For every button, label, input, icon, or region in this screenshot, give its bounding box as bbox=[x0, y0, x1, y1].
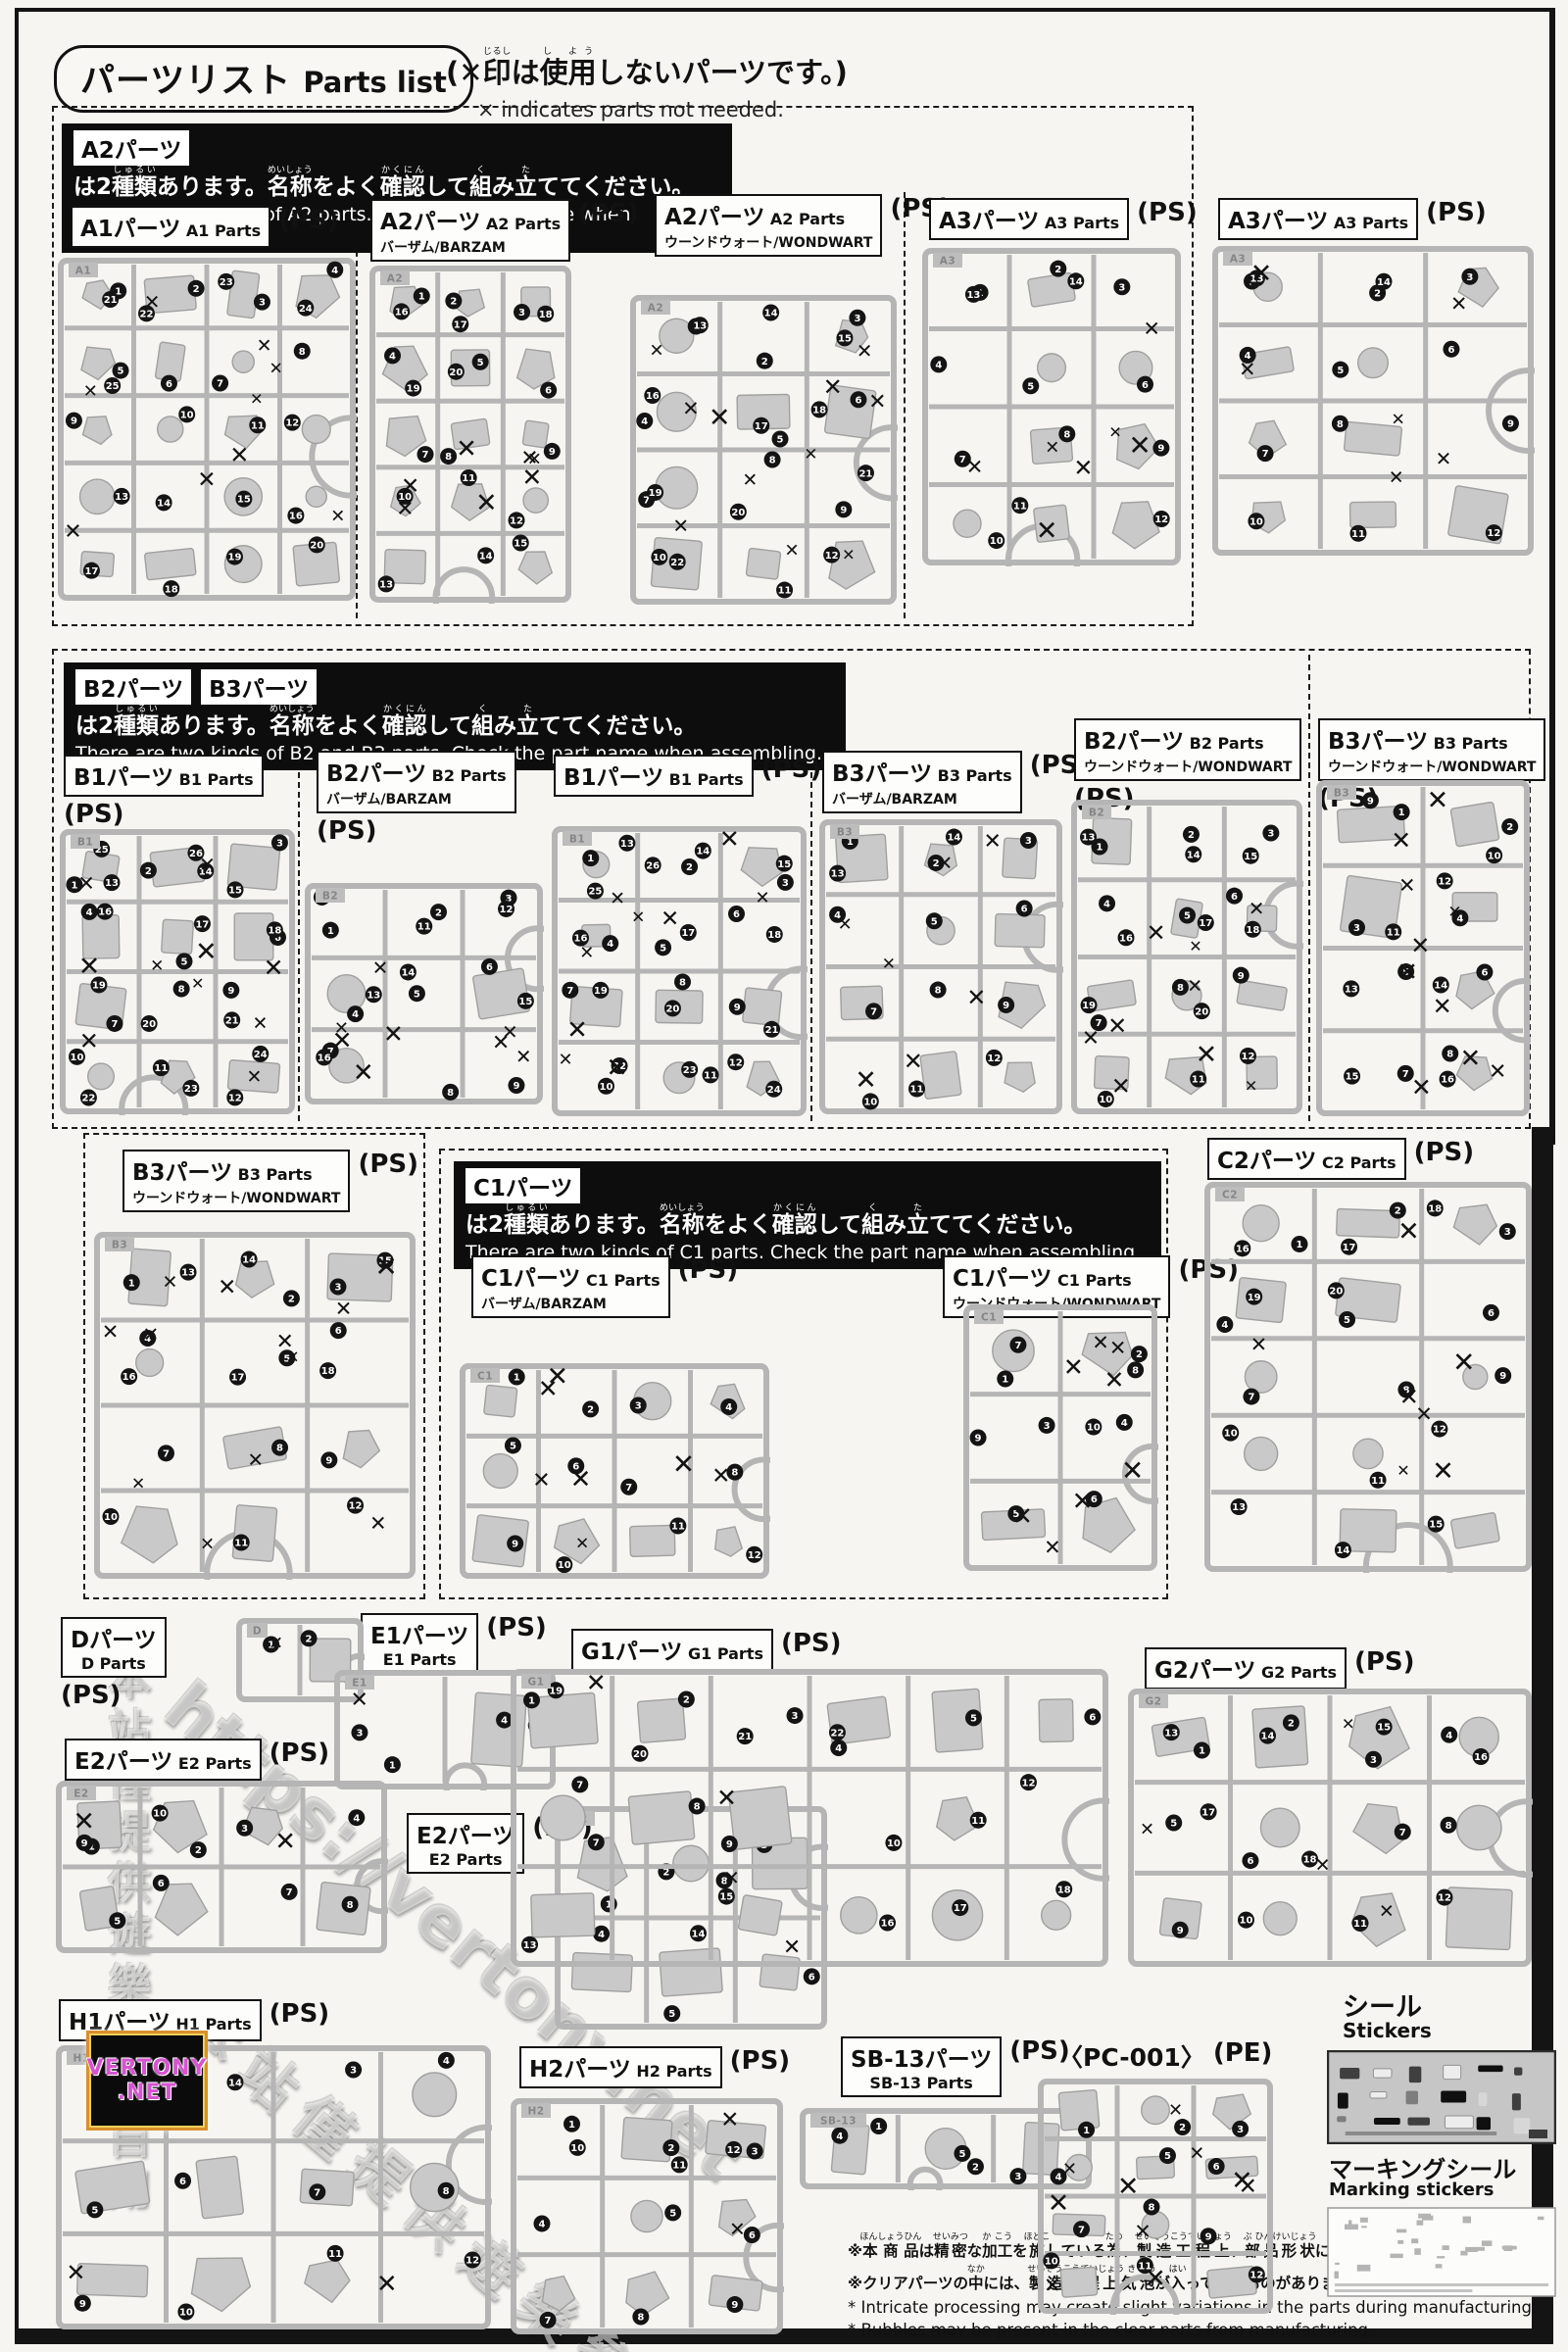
runner-tag-C2: C2 bbox=[1222, 1190, 1238, 1201]
not-needed-x-mark: ✕ bbox=[77, 872, 95, 896]
svg-text:5: 5 bbox=[958, 2149, 965, 2160]
svg-text:17: 17 bbox=[84, 566, 98, 577]
part-label-box: B3パーツ B3 Parts バーザム/BARZAM bbox=[822, 751, 1022, 813]
svg-text:13: 13 bbox=[831, 869, 845, 880]
svg-text:10: 10 bbox=[1240, 1916, 1253, 1927]
not-needed-x-mark: ✕ bbox=[1072, 1488, 1094, 1517]
svg-text:6: 6 bbox=[486, 962, 493, 973]
not-needed-x-mark: ✕ bbox=[1082, 1027, 1100, 1052]
svg-text:9: 9 bbox=[731, 2300, 738, 2311]
svg-text:11: 11 bbox=[1371, 1476, 1385, 1487]
svg-text:4: 4 bbox=[641, 416, 648, 427]
runner-c1-barzam: 123456789101112✕✕✕✕✕✕✕C1 bbox=[459, 1362, 770, 1580]
not-needed-x-mark: ✕ bbox=[229, 441, 249, 468]
svg-text:9: 9 bbox=[513, 1081, 519, 1092]
not-needed-x-mark: ✕ bbox=[1452, 1346, 1475, 1378]
svg-text:21: 21 bbox=[104, 295, 118, 306]
part-label-box: E2パーツ E2 Parts bbox=[407, 1813, 524, 1874]
svg-text:19: 19 bbox=[228, 553, 242, 563]
svg-text:10: 10 bbox=[1488, 851, 1501, 861]
not-needed-x-mark: ✕ bbox=[672, 514, 689, 538]
svg-text:12: 12 bbox=[1438, 876, 1451, 887]
svg-text:6: 6 bbox=[545, 386, 552, 397]
svg-text:15: 15 bbox=[237, 495, 251, 506]
svg-text:10: 10 bbox=[863, 1098, 877, 1108]
not-needed-x-mark: ✕ bbox=[1450, 292, 1468, 316]
svg-text:5: 5 bbox=[114, 1916, 121, 1927]
not-needed-x-mark: ✕ bbox=[532, 1469, 550, 1494]
not-needed-x-mark: ✕ bbox=[335, 1297, 353, 1320]
vertony-logo: VERTONY .NET bbox=[86, 2031, 208, 2131]
svg-text:15: 15 bbox=[777, 859, 791, 870]
sticker-label-en: Stickers bbox=[1343, 2019, 1432, 2042]
not-needed-x-mark: ✕ bbox=[716, 1784, 737, 1812]
not-needed-x-mark: ✕ bbox=[1189, 2142, 1204, 2164]
svg-text:12: 12 bbox=[729, 1057, 743, 1068]
svg-text:17: 17 bbox=[954, 1903, 967, 1914]
not-needed-x-mark: ✕ bbox=[570, 1465, 592, 1494]
svg-text:2: 2 bbox=[683, 1695, 690, 1706]
svg-text:6: 6 bbox=[166, 379, 172, 390]
svg-text:1: 1 bbox=[1002, 1375, 1008, 1386]
svg-text:15: 15 bbox=[1429, 1520, 1443, 1531]
svg-text:14: 14 bbox=[696, 847, 710, 857]
svg-text:3: 3 bbox=[782, 878, 789, 889]
svg-text:2: 2 bbox=[195, 1845, 202, 1856]
not-needed-x-mark: ✕ bbox=[264, 954, 284, 982]
not-needed-x-mark: ✕ bbox=[649, 340, 663, 361]
svg-text:16: 16 bbox=[1119, 933, 1133, 944]
svg-text:13: 13 bbox=[1232, 1502, 1246, 1513]
not-needed-x-mark: ✕ bbox=[804, 445, 817, 465]
svg-text:12: 12 bbox=[1022, 1778, 1036, 1788]
svg-text:9: 9 bbox=[227, 986, 234, 997]
not-needed-x-mark: ✕ bbox=[1432, 1456, 1454, 1487]
material-code: (PS) bbox=[1137, 198, 1198, 227]
not-needed-x-mark: ✕ bbox=[191, 974, 204, 993]
svg-text:21: 21 bbox=[765, 1025, 779, 1036]
not-needed-x-mark: ✕ bbox=[401, 473, 419, 499]
svg-text:11: 11 bbox=[234, 1539, 248, 1549]
runner-a2-wondwart: 12345678910111213141516171819202122✕✕✕✕✕… bbox=[629, 294, 898, 606]
svg-text:11: 11 bbox=[672, 2160, 686, 2171]
svg-text:10: 10 bbox=[1249, 516, 1263, 527]
material-code: (PS) bbox=[761, 755, 822, 784]
svg-text:5: 5 bbox=[1344, 1315, 1350, 1326]
svg-text:20: 20 bbox=[665, 1004, 679, 1015]
not-needed-x-mark: ✕ bbox=[857, 339, 873, 363]
svg-text:15: 15 bbox=[1346, 1072, 1359, 1083]
svg-text:4: 4 bbox=[501, 1716, 508, 1727]
not-needed-x-mark: ✕ bbox=[1044, 2274, 1061, 2297]
not-needed-x-mark: ✕ bbox=[527, 449, 542, 469]
page-title: パーツリスト Parts list bbox=[54, 45, 473, 113]
svg-text:4: 4 bbox=[607, 939, 613, 950]
svg-text:8: 8 bbox=[447, 1088, 454, 1099]
svg-text:7: 7 bbox=[870, 1006, 877, 1017]
svg-text:6: 6 bbox=[1481, 968, 1488, 979]
svg-text:2: 2 bbox=[1288, 1718, 1295, 1729]
not-needed-x-mark: ✕ bbox=[1062, 2159, 1077, 2180]
svg-text:8: 8 bbox=[443, 2186, 450, 2197]
svg-text:11: 11 bbox=[704, 1070, 717, 1081]
not-needed-x-mark: ✕ bbox=[247, 1447, 264, 1471]
svg-text:4: 4 bbox=[935, 360, 942, 370]
svg-text:18: 18 bbox=[321, 1366, 335, 1377]
svg-text:6: 6 bbox=[1142, 380, 1149, 391]
svg-text:3: 3 bbox=[1237, 2125, 1244, 2135]
material-code: (PS) bbox=[1426, 198, 1487, 227]
svg-text:9: 9 bbox=[1177, 1926, 1184, 1936]
svg-text:17: 17 bbox=[1201, 1807, 1215, 1818]
page-border-right bbox=[1549, 8, 1555, 1145]
svg-text:3: 3 bbox=[1267, 829, 1274, 840]
not-needed-x-mark: ✕ bbox=[558, 1050, 572, 1070]
not-needed-x-mark: ✕ bbox=[73, 1806, 95, 1837]
svg-text:2: 2 bbox=[1136, 1349, 1143, 1360]
svg-text:4: 4 bbox=[835, 1743, 842, 1754]
svg-text:9: 9 bbox=[734, 1003, 741, 1013]
svg-text:3: 3 bbox=[241, 1824, 248, 1835]
banner-a2-text-jp: は2種類しゅるいあります。名称めいしょうをよく確認かくにんして組くみ立たててくだ… bbox=[73, 174, 694, 200]
banner-c1-text-jp: は2種類しゅるいあります。名称めいしょうをよく確認かくにんして組くみ立たててくだ… bbox=[465, 1212, 1086, 1238]
svg-text:4: 4 bbox=[725, 1402, 732, 1413]
svg-text:14: 14 bbox=[401, 968, 415, 979]
svg-text:21: 21 bbox=[225, 1016, 239, 1027]
svg-text:5: 5 bbox=[669, 2209, 676, 2220]
svg-text:3: 3 bbox=[276, 839, 283, 850]
svg-text:7: 7 bbox=[422, 450, 429, 461]
banner-b-tag1: B2パーツ bbox=[75, 669, 191, 705]
svg-text:23: 23 bbox=[683, 1065, 697, 1076]
not-needed-x-mark: ✕ bbox=[538, 1374, 559, 1402]
runner-c1-wondwart: 12345678910✕✕✕✕✕✕✕✕C1 bbox=[962, 1303, 1158, 1572]
runner-tag-G1: G1 bbox=[528, 1677, 545, 1689]
svg-text:3: 3 bbox=[356, 1728, 363, 1739]
svg-text:17: 17 bbox=[755, 421, 768, 432]
svg-text:6: 6 bbox=[808, 1972, 815, 1983]
runner-g1: 12345678910111213141516171819202122✕✕G1 bbox=[510, 1668, 1109, 1968]
not-needed-x-mark: ✕ bbox=[218, 1275, 236, 1300]
not-needed-x-mark: ✕ bbox=[253, 1012, 269, 1034]
svg-text:20: 20 bbox=[142, 1019, 156, 1030]
svg-text:20: 20 bbox=[449, 367, 463, 378]
svg-text:15: 15 bbox=[228, 886, 242, 897]
material-code: (PS) bbox=[578, 199, 639, 228]
svg-text:1: 1 bbox=[389, 1760, 396, 1771]
svg-text:2: 2 bbox=[1395, 1206, 1401, 1217]
svg-text:3: 3 bbox=[1014, 2172, 1021, 2182]
not-needed-x-mark: ✕ bbox=[250, 389, 263, 408]
svg-text:8: 8 bbox=[694, 1802, 701, 1813]
svg-text:13: 13 bbox=[1082, 833, 1096, 844]
svg-text:9: 9 bbox=[1367, 796, 1374, 807]
svg-text:1: 1 bbox=[1199, 1746, 1205, 1757]
svg-text:7: 7 bbox=[1262, 449, 1269, 460]
svg-text:12: 12 bbox=[825, 551, 839, 562]
not-needed-x-mark: ✕ bbox=[1389, 467, 1404, 489]
svg-text:16: 16 bbox=[881, 1919, 895, 1930]
material-code: (PS) bbox=[678, 1255, 739, 1285]
svg-text:3: 3 bbox=[518, 308, 525, 318]
not-needed-x-mark: ✕ bbox=[353, 1058, 374, 1088]
not-needed-x-mark: ✕ bbox=[1379, 1901, 1395, 1923]
runner-b1-left: 1234567891011121314151617181920212223242… bbox=[59, 828, 296, 1115]
not-needed-x-mark: ✕ bbox=[882, 955, 896, 974]
svg-text:12: 12 bbox=[228, 1093, 242, 1103]
svg-text:8: 8 bbox=[1177, 983, 1184, 994]
banner-c1: C1パーツは2種類しゅるいあります。名称めいしょうをよく確認かくにんして組くみ立… bbox=[454, 1161, 1161, 1269]
part-label-pc-001: 〈PC-001〉(PE) bbox=[1058, 2038, 1272, 2074]
not-needed-x-mark: ✕ bbox=[566, 1016, 588, 1046]
banner-c1-tag: C1パーツ bbox=[465, 1168, 580, 1203]
vertony-logo-line2: .NET bbox=[118, 2081, 177, 2105]
svg-text:6: 6 bbox=[1213, 2162, 1220, 2173]
svg-text:8: 8 bbox=[935, 986, 942, 997]
not-needed-x-mark: ✕ bbox=[755, 888, 769, 908]
not-needed-x-mark: ✕ bbox=[868, 390, 886, 415]
runner-tag-B1: B1 bbox=[569, 834, 585, 846]
part-label-a3-right: A3パーツ A3 Parts (PS) bbox=[1218, 198, 1487, 240]
svg-text:10: 10 bbox=[153, 1809, 167, 1820]
svg-text:8: 8 bbox=[637, 2313, 644, 2324]
runner-tag-B3: B3 bbox=[112, 1240, 127, 1251]
svg-text:23: 23 bbox=[184, 1084, 198, 1095]
part-label-b3-barzam: B3パーツ B3 Parts バーザム/BARZAM(PS) bbox=[822, 751, 1090, 813]
svg-text:20: 20 bbox=[633, 1749, 647, 1760]
svg-text:9: 9 bbox=[1205, 2231, 1212, 2242]
svg-text:4: 4 bbox=[538, 2220, 545, 2230]
svg-text:2: 2 bbox=[1054, 265, 1061, 275]
page-border-right-thick bbox=[1532, 1127, 1553, 2342]
runner-e2: 12345678910✕✕E2 bbox=[55, 1780, 388, 1954]
svg-text:14: 14 bbox=[1434, 981, 1447, 992]
svg-text:19: 19 bbox=[1082, 1001, 1096, 1011]
not-needed-x-mark: ✕ bbox=[200, 1534, 215, 1554]
material-code: (PS) bbox=[486, 1613, 547, 1642]
svg-text:5: 5 bbox=[477, 358, 484, 368]
svg-text:14: 14 bbox=[947, 833, 960, 844]
not-needed-x-mark: ✕ bbox=[1411, 1073, 1432, 1102]
not-needed-x-mark: ✕ bbox=[274, 1827, 296, 1856]
svg-text:22: 22 bbox=[81, 1094, 95, 1104]
svg-text:24: 24 bbox=[299, 304, 313, 315]
svg-text:10: 10 bbox=[570, 2143, 584, 2154]
svg-text:8: 8 bbox=[445, 452, 452, 463]
part-label-box: B1パーツ B1 Parts bbox=[554, 755, 754, 797]
svg-text:19: 19 bbox=[594, 986, 608, 997]
svg-text:14: 14 bbox=[764, 309, 778, 319]
material-code: (PS) bbox=[730, 2046, 791, 2076]
material-code: (PS) bbox=[781, 1629, 842, 1658]
not-needed-x-mark: ✕ bbox=[1140, 1819, 1154, 1839]
svg-text:7: 7 bbox=[286, 1887, 293, 1898]
svg-text:10: 10 bbox=[1087, 1423, 1101, 1434]
not-needed-x-mark: ✕ bbox=[1143, 317, 1160, 340]
svg-text:2: 2 bbox=[1374, 288, 1381, 299]
svg-text:18: 18 bbox=[268, 925, 281, 936]
not-needed-x-mark: ✕ bbox=[64, 520, 81, 545]
parts-list-page: パーツリスト Parts list (✕印じるしは使用し ようしないパーツです。… bbox=[0, 0, 1568, 2352]
svg-text:14: 14 bbox=[242, 1255, 256, 1266]
svg-text:3: 3 bbox=[1504, 1227, 1511, 1238]
svg-text:11: 11 bbox=[1353, 1919, 1367, 1930]
svg-text:3: 3 bbox=[350, 2066, 357, 2077]
not-needed-x-mark: ✕ bbox=[1410, 932, 1430, 959]
not-needed-x-mark: ✕ bbox=[369, 1511, 387, 1535]
svg-text:16: 16 bbox=[1441, 1075, 1454, 1086]
not-needed-x-mark: ✕ bbox=[1073, 455, 1093, 482]
runner-tag-C1: C1 bbox=[981, 1312, 997, 1324]
svg-text:20: 20 bbox=[731, 508, 745, 518]
not-needed-x-mark: ✕ bbox=[131, 1474, 145, 1494]
material-code: (PS) bbox=[269, 1739, 330, 1768]
svg-text:5: 5 bbox=[1184, 911, 1191, 922]
svg-text:7: 7 bbox=[1078, 2225, 1085, 2235]
runner-pc-001: 123456789101112✕✕✕✕✕✕✕✕✕✕ bbox=[1037, 2078, 1274, 2315]
runner-a2-barzam: 1234567891011121314151617181920✕✕✕✕✕✕✕A2 bbox=[368, 265, 572, 604]
not-needed-x-mark: ✕ bbox=[144, 290, 161, 314]
svg-text:19: 19 bbox=[649, 488, 662, 499]
svg-text:12: 12 bbox=[465, 2256, 479, 2267]
runner-b3-wondwart: 12345678910111213141516✕✕✕✕✕✕✕✕✕✕B3 bbox=[1315, 779, 1531, 1117]
marking-sticker-label-en: Marking stickers bbox=[1329, 2180, 1494, 2200]
part-label-box: G2パーツ G2 Parts bbox=[1145, 1647, 1347, 1690]
not-needed-x-mark: ✕ bbox=[330, 507, 345, 527]
svg-text:3: 3 bbox=[1370, 1755, 1377, 1766]
svg-text:21: 21 bbox=[738, 1732, 752, 1742]
marking-sticker-sheet bbox=[1327, 2207, 1556, 2297]
part-label-a2-wondwart: A2パーツ A2 Parts ウーンドウォート/WONDWART(PS) bbox=[655, 194, 951, 257]
not-needed-x-mark: ✕ bbox=[1107, 1012, 1127, 1040]
not-needed-x-mark: ✕ bbox=[661, 906, 679, 932]
not-needed-x-mark: ✕ bbox=[1460, 1045, 1482, 1074]
not-needed-x-mark: ✕ bbox=[586, 1668, 607, 1696]
runner-b1-right: 1234567891011121314151617181920212223242… bbox=[551, 825, 808, 1117]
not-needed-x-mark: ✕ bbox=[1147, 919, 1166, 947]
svg-text:5: 5 bbox=[414, 989, 420, 1000]
svg-text:12: 12 bbox=[727, 2145, 741, 2156]
part-label-c1-barzam: C1パーツ C1 Parts バーザム/BARZAM(PS) bbox=[471, 1255, 738, 1318]
not-needed-x-mark: ✕ bbox=[1117, 2172, 1140, 2202]
part-label-box: A3パーツ A3 Parts bbox=[1218, 198, 1418, 240]
svg-text:3: 3 bbox=[792, 1711, 799, 1722]
svg-text:1: 1 bbox=[418, 292, 425, 303]
svg-text:6: 6 bbox=[1089, 1713, 1096, 1724]
svg-text:22: 22 bbox=[670, 558, 684, 568]
svg-text:18: 18 bbox=[1246, 925, 1259, 936]
svg-text:17: 17 bbox=[681, 928, 695, 939]
material-code: (PS) bbox=[278, 206, 339, 235]
svg-text:18: 18 bbox=[165, 584, 178, 595]
svg-text:10: 10 bbox=[887, 1838, 901, 1849]
svg-text:11: 11 bbox=[1387, 927, 1400, 938]
not-needed-x-mark: ✕ bbox=[1250, 1333, 1268, 1356]
not-needed-x-mark: ✕ bbox=[1239, 358, 1256, 381]
not-needed-x-mark: ✕ bbox=[966, 984, 986, 1011]
not-needed-x-mark: ✕ bbox=[257, 335, 272, 357]
part-label-box: B3パーツ B3 Parts ウーンドウォート/WONDWART bbox=[122, 1150, 350, 1212]
material-code: (PS) bbox=[317, 816, 377, 846]
svg-text:15: 15 bbox=[838, 334, 852, 345]
svg-text:14: 14 bbox=[157, 498, 171, 509]
svg-text:3: 3 bbox=[334, 1283, 341, 1294]
svg-text:9: 9 bbox=[1507, 419, 1514, 430]
not-needed-x-mark: ✕ bbox=[1398, 873, 1416, 897]
svg-text:24: 24 bbox=[767, 1085, 781, 1096]
runner-tag-H2: H2 bbox=[527, 2106, 544, 2118]
section-b-divider-2 bbox=[810, 743, 812, 1121]
svg-text:11: 11 bbox=[462, 473, 475, 484]
svg-text:9: 9 bbox=[1238, 971, 1245, 982]
svg-text:13: 13 bbox=[620, 839, 634, 850]
not-needed-x-mark: ✕ bbox=[1048, 2188, 1070, 2219]
not-needed-x-mark: ✕ bbox=[742, 469, 758, 491]
svg-text:5: 5 bbox=[1027, 381, 1034, 392]
svg-text:11: 11 bbox=[417, 922, 431, 933]
svg-text:18: 18 bbox=[539, 310, 553, 320]
svg-text:10: 10 bbox=[180, 410, 194, 420]
svg-text:3: 3 bbox=[752, 2147, 759, 2158]
not-needed-x-mark: ✕ bbox=[142, 1322, 159, 1346]
svg-text:14: 14 bbox=[1336, 1545, 1349, 1556]
part-label-text: 〈PC-001〉 bbox=[1058, 2038, 1205, 2074]
not-needed-x-mark: ✕ bbox=[1145, 2264, 1166, 2293]
svg-text:19: 19 bbox=[549, 1686, 563, 1696]
svg-text:12: 12 bbox=[1433, 1425, 1446, 1436]
svg-text:12: 12 bbox=[1249, 2271, 1263, 2281]
page-title-en: Parts list bbox=[303, 66, 447, 99]
svg-text:1: 1 bbox=[128, 1278, 135, 1289]
svg-text:7: 7 bbox=[314, 2187, 320, 2198]
not-needed-x-mark: ✕ bbox=[79, 1027, 99, 1054]
runner-tag-A2: A2 bbox=[387, 273, 403, 285]
not-needed-x-mark: ✕ bbox=[374, 1250, 397, 1283]
part-label-box: B1パーツ B1 Parts bbox=[64, 755, 264, 797]
svg-text:15: 15 bbox=[1377, 1723, 1391, 1734]
not-needed-x-mark: ✕ bbox=[1189, 937, 1201, 955]
svg-text:19: 19 bbox=[1248, 1293, 1261, 1303]
svg-text:25: 25 bbox=[106, 381, 120, 392]
svg-text:11: 11 bbox=[328, 2249, 342, 2260]
svg-text:19: 19 bbox=[92, 981, 106, 992]
svg-text:16: 16 bbox=[646, 391, 660, 402]
svg-text:17: 17 bbox=[1199, 918, 1212, 929]
not-needed-x-mark: ✕ bbox=[1044, 1536, 1061, 1559]
not-needed-x-mark: ✕ bbox=[672, 1448, 695, 1481]
runner-tag-B3: B3 bbox=[1334, 788, 1349, 800]
not-needed-x-mark: ✕ bbox=[682, 397, 700, 420]
part-label-box: B2パーツ B2 Parts バーザム/BARZAM bbox=[317, 751, 516, 813]
material-code: (PS) bbox=[64, 800, 124, 829]
svg-text:11: 11 bbox=[251, 420, 265, 431]
svg-text:2: 2 bbox=[667, 2143, 674, 2154]
svg-text:9: 9 bbox=[840, 505, 847, 515]
section-b-divider-1 bbox=[298, 743, 300, 1121]
part-label-b1-left: B1パーツ B1 Parts (PS) bbox=[64, 755, 264, 829]
svg-text:9: 9 bbox=[549, 447, 556, 458]
not-needed-x-mark: ✕ bbox=[579, 943, 594, 963]
svg-text:7: 7 bbox=[625, 1483, 632, 1494]
svg-text:14: 14 bbox=[1261, 1732, 1275, 1742]
part-label-g2: G2パーツ G2 Parts (PS) bbox=[1145, 1647, 1415, 1690]
svg-text:2: 2 bbox=[587, 1404, 594, 1415]
not-needed-x-mark: ✕ bbox=[83, 381, 98, 402]
not-needed-x-mark: ✕ bbox=[1427, 786, 1449, 816]
not-needed-x-mark: ✕ bbox=[1012, 1501, 1033, 1530]
part-label-h2: H2パーツ H2 Parts (PS) bbox=[519, 2046, 790, 2088]
svg-text:9: 9 bbox=[1499, 1371, 1506, 1382]
